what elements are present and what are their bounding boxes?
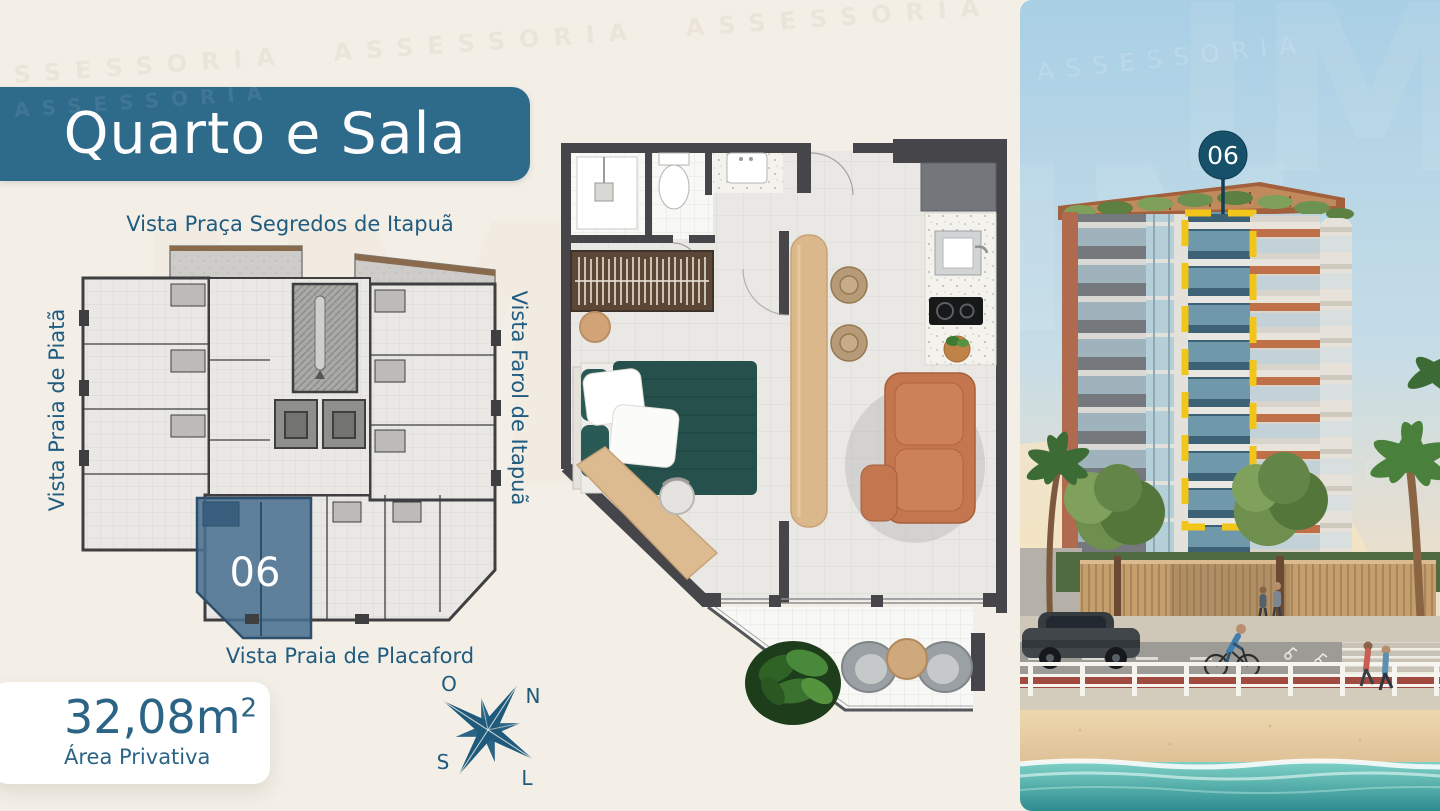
cooktop	[929, 297, 983, 325]
side-table	[580, 312, 610, 342]
title-banner: ASSESSORIA Quarto e Sala	[0, 87, 530, 181]
compass-star	[443, 685, 533, 775]
desk-chair	[660, 480, 694, 514]
compass-label-west: O	[441, 672, 457, 696]
unit-06-label: 06	[230, 550, 281, 596]
tv-panel	[921, 163, 996, 211]
toilet	[659, 153, 689, 209]
area-card: 32,08m2 Área Privativa	[0, 682, 270, 784]
wardrobe	[571, 251, 713, 311]
compass-label-north: N	[526, 684, 541, 708]
compass-label-east: L	[521, 766, 533, 790]
kitchen-island	[791, 235, 827, 527]
facade-terracotta	[1062, 212, 1078, 586]
unit-floorplan	[555, 135, 1015, 755]
washbasin	[727, 153, 767, 183]
crosswalk-stairs	[1342, 642, 1440, 676]
compass-rose-icon: O N S L	[423, 663, 553, 793]
fence	[1080, 560, 1436, 618]
kitchen-sink	[935, 231, 987, 275]
counter-plant	[944, 336, 970, 362]
beach-sand	[1020, 710, 1440, 766]
stair-core	[293, 284, 357, 392]
compass-label-south: S	[437, 750, 450, 774]
floorplate-diagram: 06	[75, 240, 505, 642]
area-exponent: 2	[241, 694, 258, 724]
unit-marker-label: 06	[1207, 141, 1239, 170]
ocean	[1020, 761, 1440, 811]
area-label: Área Privativa	[64, 745, 270, 769]
brochure-page: ASSESSORIA ASSESSORIA ASSESSORIA IM ASSE…	[0, 0, 1440, 811]
view-label-left: Vista Praia de Piatã	[45, 309, 69, 512]
balcony-plant	[745, 641, 841, 725]
facade-rounded-balconies	[1320, 218, 1352, 586]
view-label-right: Vista Farol de Itapuã	[507, 291, 531, 506]
kitchen-counter	[925, 213, 996, 365]
building-photo: ASSESSORIA ASSESSORIA IM IM	[1020, 0, 1440, 811]
background-watermark-text: ASSESSORIA ASSESSORIA ASSESSORIA	[0, 0, 994, 91]
balcony-table	[887, 639, 927, 679]
area-value: 32,08m2	[64, 692, 270, 743]
view-label-top: Vista Praça Segredos de Itapuã	[75, 212, 505, 236]
